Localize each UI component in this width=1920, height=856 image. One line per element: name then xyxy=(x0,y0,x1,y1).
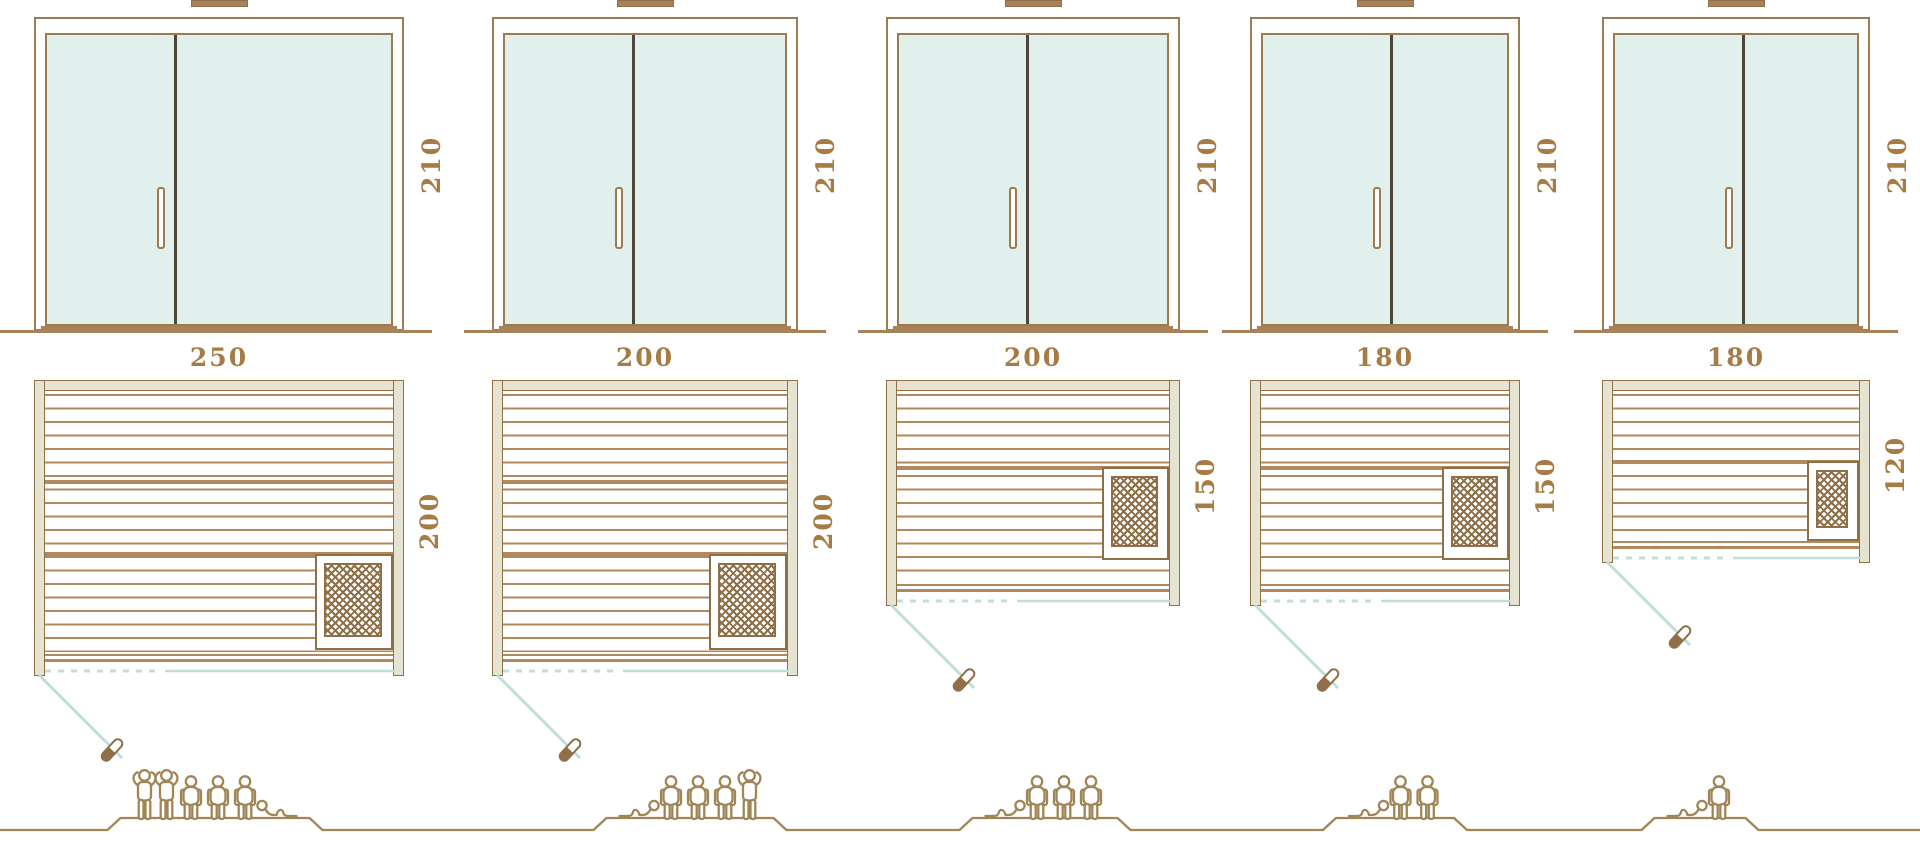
floor-plan xyxy=(1250,380,1520,608)
door-swing-handle-icon xyxy=(558,737,582,762)
wall-left xyxy=(1602,380,1613,563)
person-sitting-icon xyxy=(688,776,708,819)
door-swing-handle-icon xyxy=(1316,667,1340,692)
person-sitting-icon xyxy=(1391,776,1411,819)
door-frame xyxy=(1250,17,1520,331)
width-dimension-label: 180 xyxy=(1602,343,1870,373)
wall-top xyxy=(1602,380,1870,391)
floor-front-edge-line xyxy=(1261,584,1509,586)
person-sitting-icon xyxy=(181,776,201,819)
ground-line xyxy=(0,330,432,333)
floor-boards xyxy=(897,394,1169,582)
person-sitting-icon xyxy=(1418,776,1438,819)
wall-top xyxy=(1250,380,1520,391)
bench-edge-line xyxy=(503,552,787,556)
door-handle xyxy=(1725,187,1733,249)
door-frame xyxy=(492,17,798,331)
floor-boards xyxy=(503,394,787,652)
door-frame xyxy=(886,17,1180,331)
heater-bench xyxy=(1102,467,1169,560)
person-sitting-icon xyxy=(208,776,228,819)
roof-vent-cap xyxy=(1708,0,1765,7)
heater-bench xyxy=(1807,461,1859,541)
door-swing-handle-icon xyxy=(100,737,124,762)
person-lying-icon xyxy=(620,801,659,816)
capacity-group xyxy=(134,770,297,819)
ground-line xyxy=(464,330,826,333)
floor-front-edge-line xyxy=(503,654,787,656)
wall-left xyxy=(1250,380,1261,606)
door-divider-line xyxy=(1742,35,1745,324)
plan-annotations-layer xyxy=(0,0,1920,856)
door-height-dimension-label: 210 xyxy=(1883,136,1913,194)
door-glass xyxy=(503,33,787,326)
floor-front-edge-line xyxy=(45,659,393,662)
door-swing-handle-icon xyxy=(1668,624,1692,649)
wall-left xyxy=(492,380,503,676)
bench-edge-line xyxy=(45,552,393,556)
ground-profile-line xyxy=(0,818,1920,830)
person-sitting-icon xyxy=(235,776,255,819)
ground-line xyxy=(1222,330,1548,333)
door-front-elevation xyxy=(34,0,404,333)
floor-boards xyxy=(45,394,393,652)
sauna-model-column: 210180150 xyxy=(0,0,1920,856)
wall-top xyxy=(492,380,798,391)
wall-left xyxy=(34,380,45,676)
heater-bench xyxy=(709,554,787,650)
capacity-group xyxy=(1668,776,1730,819)
door-sill xyxy=(1609,326,1863,331)
floor-front-edge-line xyxy=(1613,541,1859,543)
person-lying-icon xyxy=(986,801,1025,816)
door-handle xyxy=(1373,187,1381,249)
door-glass xyxy=(1613,33,1859,326)
door-glass xyxy=(897,33,1169,326)
floor-plan xyxy=(492,380,798,678)
capacity-group xyxy=(1349,776,1438,819)
door-sill xyxy=(1257,326,1513,331)
width-dimension-label: 180 xyxy=(1250,343,1520,373)
heater-stones xyxy=(1111,476,1158,547)
person-sitting-icon xyxy=(1054,776,1074,819)
door-divider-line xyxy=(174,35,177,324)
sauna-model-column: 210180120 xyxy=(0,0,1920,856)
door-height-dimension-label: 210 xyxy=(417,136,447,194)
bench-edge-line xyxy=(1261,466,1509,470)
capacity-group xyxy=(620,770,761,819)
heater-stones xyxy=(718,563,776,637)
heater-stones xyxy=(324,563,382,637)
door-swing-line xyxy=(39,675,122,758)
width-dimension-label: 200 xyxy=(492,343,798,373)
wall-top xyxy=(34,380,404,391)
door-frame xyxy=(1602,17,1870,331)
heater-bench xyxy=(1442,467,1509,560)
person-lying-icon xyxy=(257,801,296,816)
sauna-model-column: 210200200 xyxy=(0,0,1920,856)
roof-vent-cap xyxy=(191,0,248,7)
sauna-size-comparison-diagram: 2102502002102002002102001502101801502101… xyxy=(0,0,1920,856)
floor-plan xyxy=(1602,380,1870,565)
wall-right xyxy=(1169,380,1180,606)
wall-right xyxy=(1509,380,1520,606)
door-handle xyxy=(1009,187,1017,249)
person-sitting-icon xyxy=(715,776,735,819)
door-divider-line xyxy=(632,35,635,324)
width-dimension-label: 250 xyxy=(34,343,404,373)
width-dimension-label: 200 xyxy=(886,343,1180,373)
person-lying-icon xyxy=(1668,801,1707,816)
floor-boards xyxy=(1613,394,1859,539)
floor-front-edge-line xyxy=(45,654,393,656)
person-lying-icon xyxy=(1349,801,1388,816)
heater-stones xyxy=(1451,476,1498,547)
sauna-model-column: 210200150 xyxy=(0,0,1920,856)
roof-vent-cap xyxy=(617,0,674,7)
heater-bench xyxy=(315,554,393,650)
floor-front-edge-line xyxy=(897,584,1169,586)
floor-plan xyxy=(886,380,1180,608)
floor-front-edge-line xyxy=(503,659,787,662)
door-frame xyxy=(34,17,404,331)
wall-right xyxy=(787,380,798,676)
depth-dimension-label: 120 xyxy=(1881,436,1911,494)
door-glass xyxy=(1261,33,1509,326)
person-standing-icon xyxy=(156,770,178,819)
door-sill xyxy=(893,326,1173,331)
depth-dimension-label: 150 xyxy=(1191,457,1221,515)
door-divider-line xyxy=(1390,35,1393,324)
wall-top xyxy=(886,380,1180,391)
depth-dimension-label: 150 xyxy=(1531,457,1561,515)
door-swing-handle-icon xyxy=(952,667,976,692)
door-front-elevation xyxy=(886,0,1180,333)
door-handle xyxy=(157,187,165,249)
floor-boards xyxy=(1261,394,1509,582)
person-sitting-icon xyxy=(1081,776,1101,819)
door-swing-line xyxy=(497,675,580,758)
person-standing-icon xyxy=(739,770,761,819)
bench-edge-line xyxy=(1613,460,1859,464)
door-swing-line xyxy=(1607,562,1690,645)
ground-line xyxy=(1574,330,1898,333)
door-sill xyxy=(499,326,791,331)
sauna-model-column: 210250200 xyxy=(0,0,1920,856)
door-front-elevation xyxy=(492,0,798,333)
floor-front-edge-line xyxy=(897,589,1169,592)
floor-front-edge-line xyxy=(1261,589,1509,592)
ground-line xyxy=(858,330,1208,333)
door-height-dimension-label: 210 xyxy=(1533,136,1563,194)
bench-edge-line xyxy=(45,480,393,484)
door-divider-line xyxy=(1026,35,1029,324)
heater-stones xyxy=(1816,470,1848,528)
door-height-dimension-label: 210 xyxy=(1193,136,1223,194)
wall-right xyxy=(1859,380,1870,563)
door-swing-line xyxy=(891,605,974,688)
door-handle xyxy=(615,187,623,249)
door-sill xyxy=(41,326,397,331)
roof-vent-cap xyxy=(1357,0,1414,7)
depth-dimension-label: 200 xyxy=(809,492,839,550)
person-sitting-icon xyxy=(661,776,681,819)
wall-right xyxy=(393,380,404,676)
door-swing-line xyxy=(1255,605,1338,688)
bench-edge-line xyxy=(503,480,787,484)
door-glass xyxy=(45,33,393,326)
door-front-elevation xyxy=(1250,0,1520,333)
floor-plan xyxy=(34,380,404,678)
bench-edge-line xyxy=(897,466,1169,470)
wall-left xyxy=(886,380,897,606)
door-height-dimension-label: 210 xyxy=(811,136,841,194)
door-front-elevation xyxy=(1602,0,1870,333)
roof-vent-cap xyxy=(1005,0,1062,7)
capacity-group xyxy=(986,776,1102,819)
person-sitting-icon xyxy=(1027,776,1047,819)
depth-dimension-label: 200 xyxy=(415,492,445,550)
person-standing-icon xyxy=(134,770,156,819)
floor-front-edge-line xyxy=(1613,546,1859,549)
person-sitting-icon xyxy=(1709,776,1729,819)
